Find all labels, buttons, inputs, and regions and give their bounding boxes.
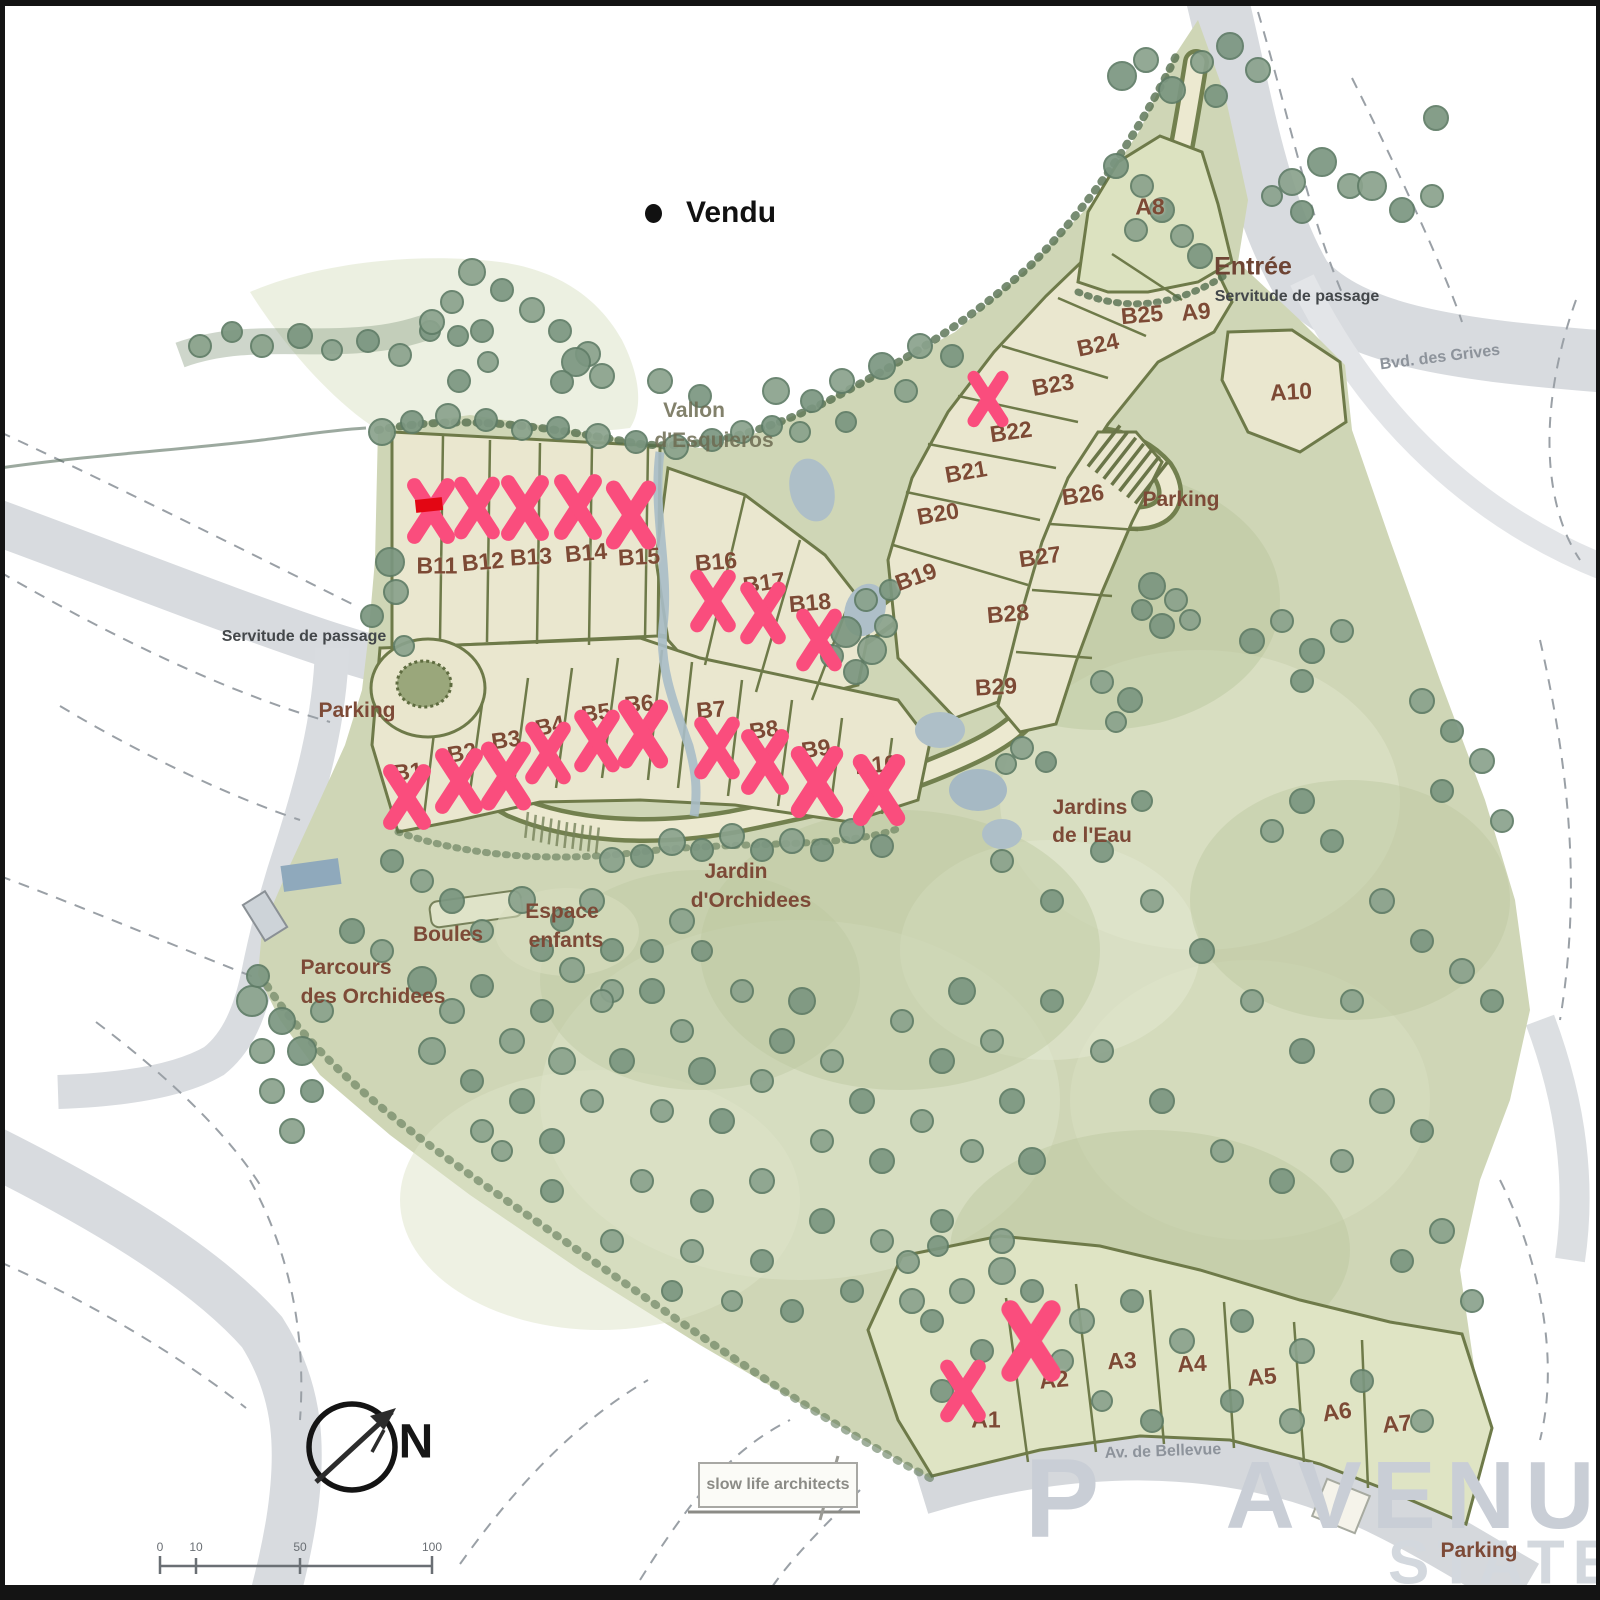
attribution-box: slow life architects — [698, 1462, 858, 1508]
place-label-espace-1: Espace — [525, 900, 599, 924]
lot-label-A3: A3 — [1107, 1347, 1138, 1376]
place-label-espace-2: enfants — [529, 929, 604, 953]
lot-label-B25: B25 — [1120, 300, 1164, 331]
place-label-parking-south: Parking — [1440, 1539, 1517, 1563]
sold-mark-A2 — [993, 1298, 1068, 1384]
sold-mark-B22 — [962, 369, 1014, 428]
place-label-jardins-eau-1: Jardins — [1053, 796, 1128, 820]
compass-north-label: N — [399, 1415, 434, 1470]
frame-bottom — [0, 1585, 1600, 1600]
lot-label-B11: B11 — [417, 553, 458, 580]
scale-tick-10: 10 — [189, 1540, 202, 1554]
place-label-boules: Boules — [413, 923, 483, 947]
place-label-parcours-2: des Orchidees — [301, 985, 446, 1009]
place-label-parking-north: Parking — [1142, 488, 1219, 512]
place-label-jardin-orch-2: d'Orchidees — [691, 889, 812, 913]
lot-label-A6: A6 — [1321, 1397, 1354, 1428]
site-plan-page: P AVENUE STATE Vendu N 0 10 50 100 slow … — [0, 0, 1600, 1600]
sold-mark-B18 — [790, 607, 848, 673]
place-label-parking-west: Parking — [318, 699, 395, 723]
sold-mark-B9 — [784, 744, 851, 820]
lot-label-B13: B13 — [509, 542, 553, 571]
watermark-fragment: P — [1025, 1434, 1100, 1563]
frame-right — [1596, 0, 1600, 1600]
scale-tick-100: 100 — [422, 1540, 442, 1554]
scale-tick-50: 50 — [293, 1540, 306, 1554]
place-label-jardin-orch-1: Jardin — [704, 860, 767, 884]
sold-mark-B15 — [599, 479, 663, 552]
place-label-vallon-1: Vallon — [663, 399, 725, 423]
sold-mark-B6 — [611, 698, 675, 771]
frame-left — [0, 0, 5, 1600]
legend-label: Vendu — [686, 196, 776, 230]
place-label-entree-note: Servitude de passage — [1215, 288, 1380, 306]
place-label-jardins-eau-2: de l'Eau — [1052, 824, 1132, 848]
scale-tick-0: 0 — [157, 1540, 164, 1554]
sold-mark-B13 — [495, 473, 556, 542]
place-label-entree: Entrée — [1214, 253, 1292, 282]
sold-mark-B10 — [846, 752, 913, 828]
lot-label-A10: A10 — [1269, 377, 1313, 406]
lot-label-B12: B12 — [461, 547, 505, 578]
lot-label-A9: A9 — [1180, 297, 1212, 326]
lot-label-B29: B29 — [974, 672, 1018, 701]
place-label-servitude-west: Servitude de passage — [222, 628, 387, 646]
lot-label-A4: A4 — [1177, 1350, 1208, 1379]
place-label-parcours-1: Parcours — [300, 956, 391, 980]
legend-dot-icon — [645, 204, 662, 223]
place-label-vallon-2: d'Esquieros — [654, 429, 773, 453]
attribution-label: slow life architects — [706, 1476, 849, 1494]
lot-label-A5: A5 — [1246, 1362, 1278, 1391]
sold-mark-A1 — [934, 1358, 992, 1424]
lot-label-A8: A8 — [1135, 194, 1164, 221]
legend-vendu: Vendu — [645, 196, 776, 230]
lot-label-B28: B28 — [986, 599, 1030, 630]
sold-mark-B17 — [734, 580, 792, 646]
compass-icon — [309, 1404, 396, 1490]
frame-top — [0, 0, 1600, 6]
lot-label-A7: A7 — [1381, 1409, 1413, 1438]
